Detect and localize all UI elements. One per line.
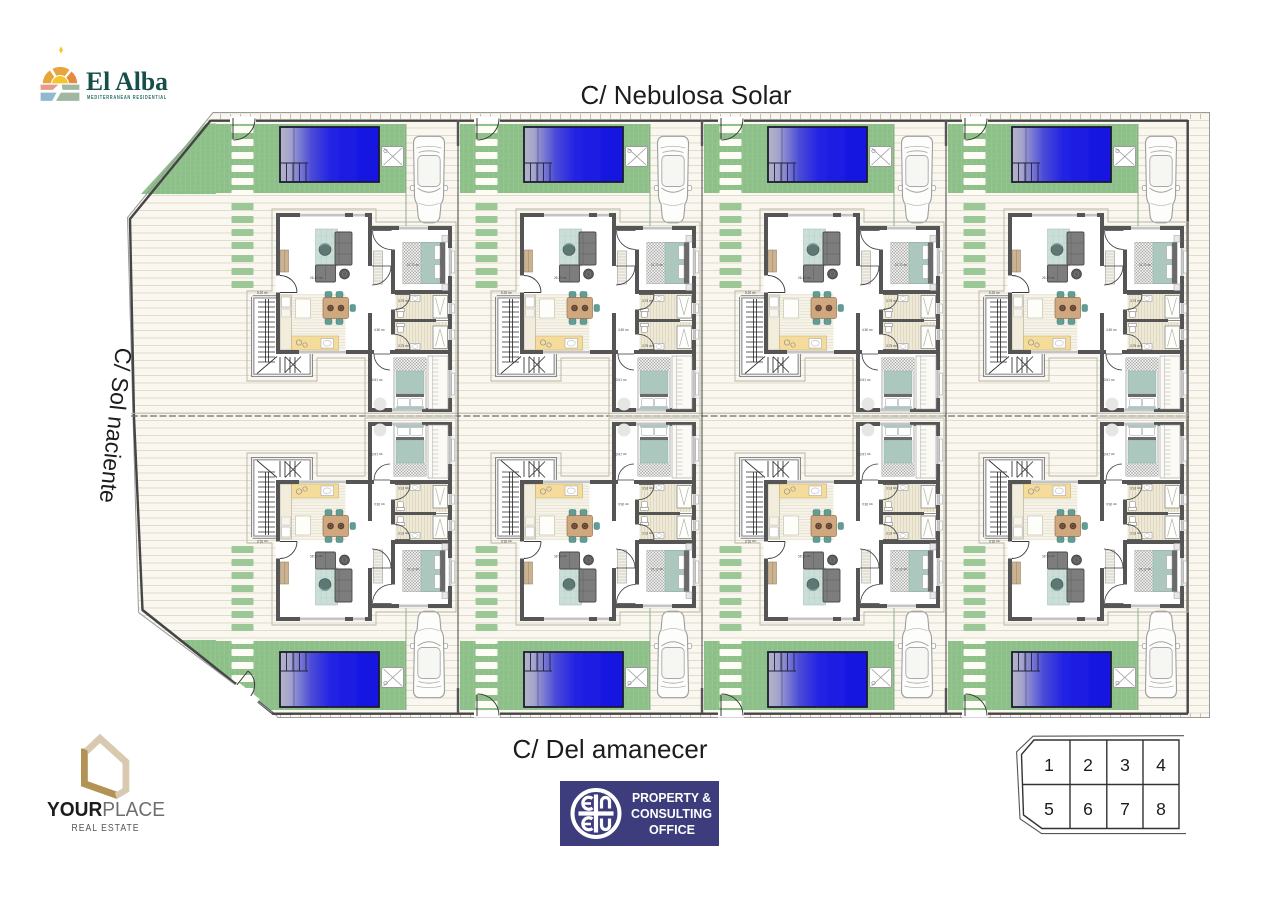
svg-text:7: 7 [1120,799,1130,819]
svg-text:6: 6 [1083,799,1093,819]
svg-text:El Alba: El Alba [86,67,168,96]
svg-text:4: 4 [1156,755,1166,775]
svg-text:YOURPLACE: YOURPLACE [47,798,165,821]
svg-text:OFFICE: OFFICE [649,822,695,837]
svg-text:3: 3 [1120,755,1130,775]
svg-text:CONSULTING: CONSULTING [631,806,712,821]
svg-text:2: 2 [1083,755,1093,775]
svg-text:PROPERTY &: PROPERTY & [632,790,711,805]
svg-text:8: 8 [1156,799,1166,819]
svg-text:C/ Nebulosa Solar: C/ Nebulosa Solar [581,80,792,110]
svg-text:1: 1 [1044,755,1054,775]
svg-text:5: 5 [1044,799,1054,819]
svg-text:REAL ESTATE: REAL ESTATE [72,822,140,834]
svg-text:MEDITERRANEAN RESIDENTIAL: MEDITERRANEAN RESIDENTIAL [87,95,167,101]
svg-text:C/ Del amanecer: C/ Del amanecer [512,734,707,764]
